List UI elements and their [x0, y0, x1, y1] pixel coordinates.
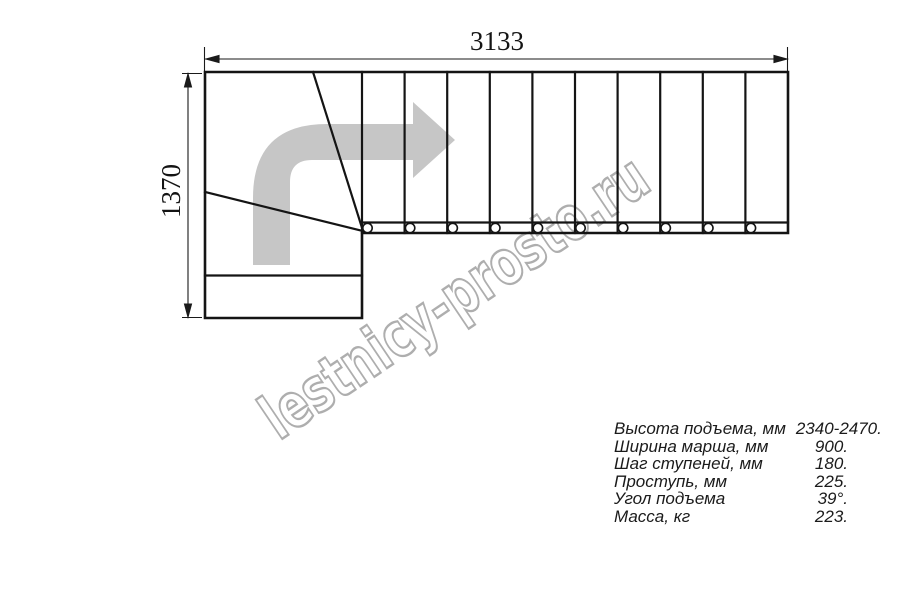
dimension-width: 3133	[205, 26, 789, 71]
dim-arrow-right-icon	[774, 56, 787, 63]
ascent-direction-arrow	[253, 102, 455, 265]
spec-value: 2340-2470.	[796, 420, 882, 438]
spec-value: 180.	[815, 455, 848, 473]
spec-label: Ширина марша, мм	[614, 438, 768, 456]
dim-arrow-down-icon	[185, 304, 192, 317]
spec-table: Высота подъема, мм 2340-2470. Ширина мар…	[614, 420, 848, 525]
staircase-drawing-page: lestnicy-prosto.ru	[0, 0, 900, 600]
spec-row: Высота подъема, мм 2340-2470.	[614, 420, 848, 438]
spec-label: Шаг ступеней, мм	[614, 455, 763, 473]
spec-label: Проступь, мм	[614, 473, 727, 491]
dimension-height-label: 1370	[156, 164, 186, 218]
spec-row: Шаг ступеней, мм 180.	[614, 455, 848, 473]
spec-value: 225.	[815, 473, 848, 491]
spec-label: Угол подъема	[614, 490, 725, 508]
dimension-width-label: 3133	[470, 26, 524, 56]
spec-value: 223.	[815, 508, 848, 526]
dimension-height: 1370	[156, 74, 202, 318]
dim-arrow-left-icon	[206, 56, 219, 63]
spec-value: 39°.	[818, 490, 848, 508]
spec-row: Масса, кг 223.	[614, 508, 848, 526]
spec-row: Угол подъема 39°.	[614, 490, 848, 508]
spec-label: Масса, кг	[614, 508, 690, 526]
spec-value: 900.	[815, 438, 848, 456]
spec-row: Проступь, мм 225.	[614, 473, 848, 491]
watermark-text: lestnicy-prosto.ru	[247, 140, 663, 453]
spec-row: Ширина марша, мм 900.	[614, 438, 848, 456]
spec-label: Высота подъема, мм	[614, 420, 786, 438]
dim-arrow-up-icon	[185, 74, 192, 87]
